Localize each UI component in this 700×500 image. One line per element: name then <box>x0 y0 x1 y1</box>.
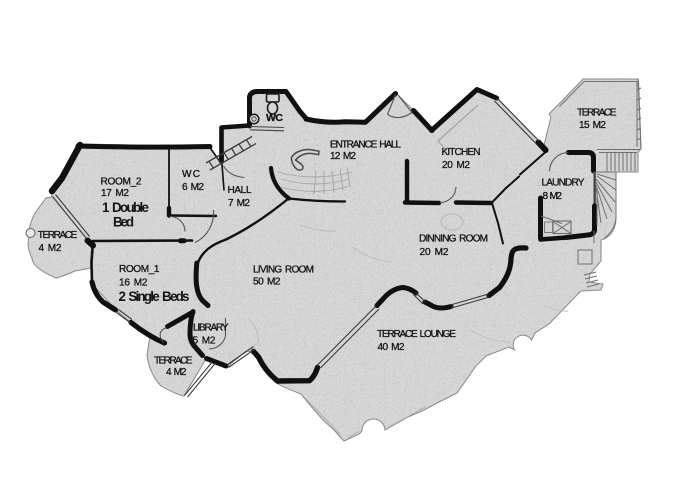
svg-text:LAUNDRY: LAUNDRY <box>542 178 585 189</box>
svg-text:16 M2: 16 M2 <box>119 278 148 289</box>
svg-text:15 M2: 15 M2 <box>579 120 606 131</box>
svg-text:LIBRARY: LIBRARY <box>193 323 229 334</box>
svg-text:6 M2: 6 M2 <box>182 182 204 193</box>
svg-text:ENTRANCE HALL: ENTRANCE HALL <box>330 140 401 151</box>
svg-text:40 M2: 40 M2 <box>378 342 405 353</box>
svg-text:ROOM_2: ROOM_2 <box>101 177 142 188</box>
svg-text:WC: WC <box>266 112 283 124</box>
svg-text:50 M2: 50 M2 <box>253 277 281 288</box>
svg-text:WC: WC <box>182 169 200 180</box>
svg-text:LIVING ROOM: LIVING ROOM <box>253 265 314 276</box>
svg-text:ROOM_1: ROOM_1 <box>119 264 160 275</box>
svg-text:5 M2: 5 M2 <box>193 336 216 347</box>
svg-text:20 M2: 20 M2 <box>442 160 470 171</box>
svg-text:17 M2: 17 M2 <box>101 188 129 199</box>
svg-text:DINNING ROOM: DINNING ROOM <box>419 234 488 245</box>
svg-text:TERRACE: TERRACE <box>577 108 617 119</box>
svg-text:20 M2: 20 M2 <box>420 247 449 258</box>
svg-text:1 Double: 1 Double <box>102 200 149 215</box>
svg-text:12 M2: 12 M2 <box>330 151 356 162</box>
svg-text:TERRACE LOUNGE: TERRACE LOUNGE <box>377 329 456 340</box>
svg-text:4 M2: 4 M2 <box>39 243 62 254</box>
svg-text:KITCHEN: KITCHEN <box>442 147 481 158</box>
svg-text:4 M2: 4 M2 <box>166 367 187 378</box>
svg-text:HALL: HALL <box>228 185 252 196</box>
svg-text:2 Single Beds: 2 Single Beds <box>119 289 190 304</box>
svg-text:Bed: Bed <box>113 215 134 230</box>
svg-text:TERRACE: TERRACE <box>38 230 78 241</box>
svg-text:8 M2: 8 M2 <box>543 191 563 202</box>
svg-text:TERRACE: TERRACE <box>154 356 193 367</box>
svg-text:7 M2: 7 M2 <box>228 198 250 209</box>
